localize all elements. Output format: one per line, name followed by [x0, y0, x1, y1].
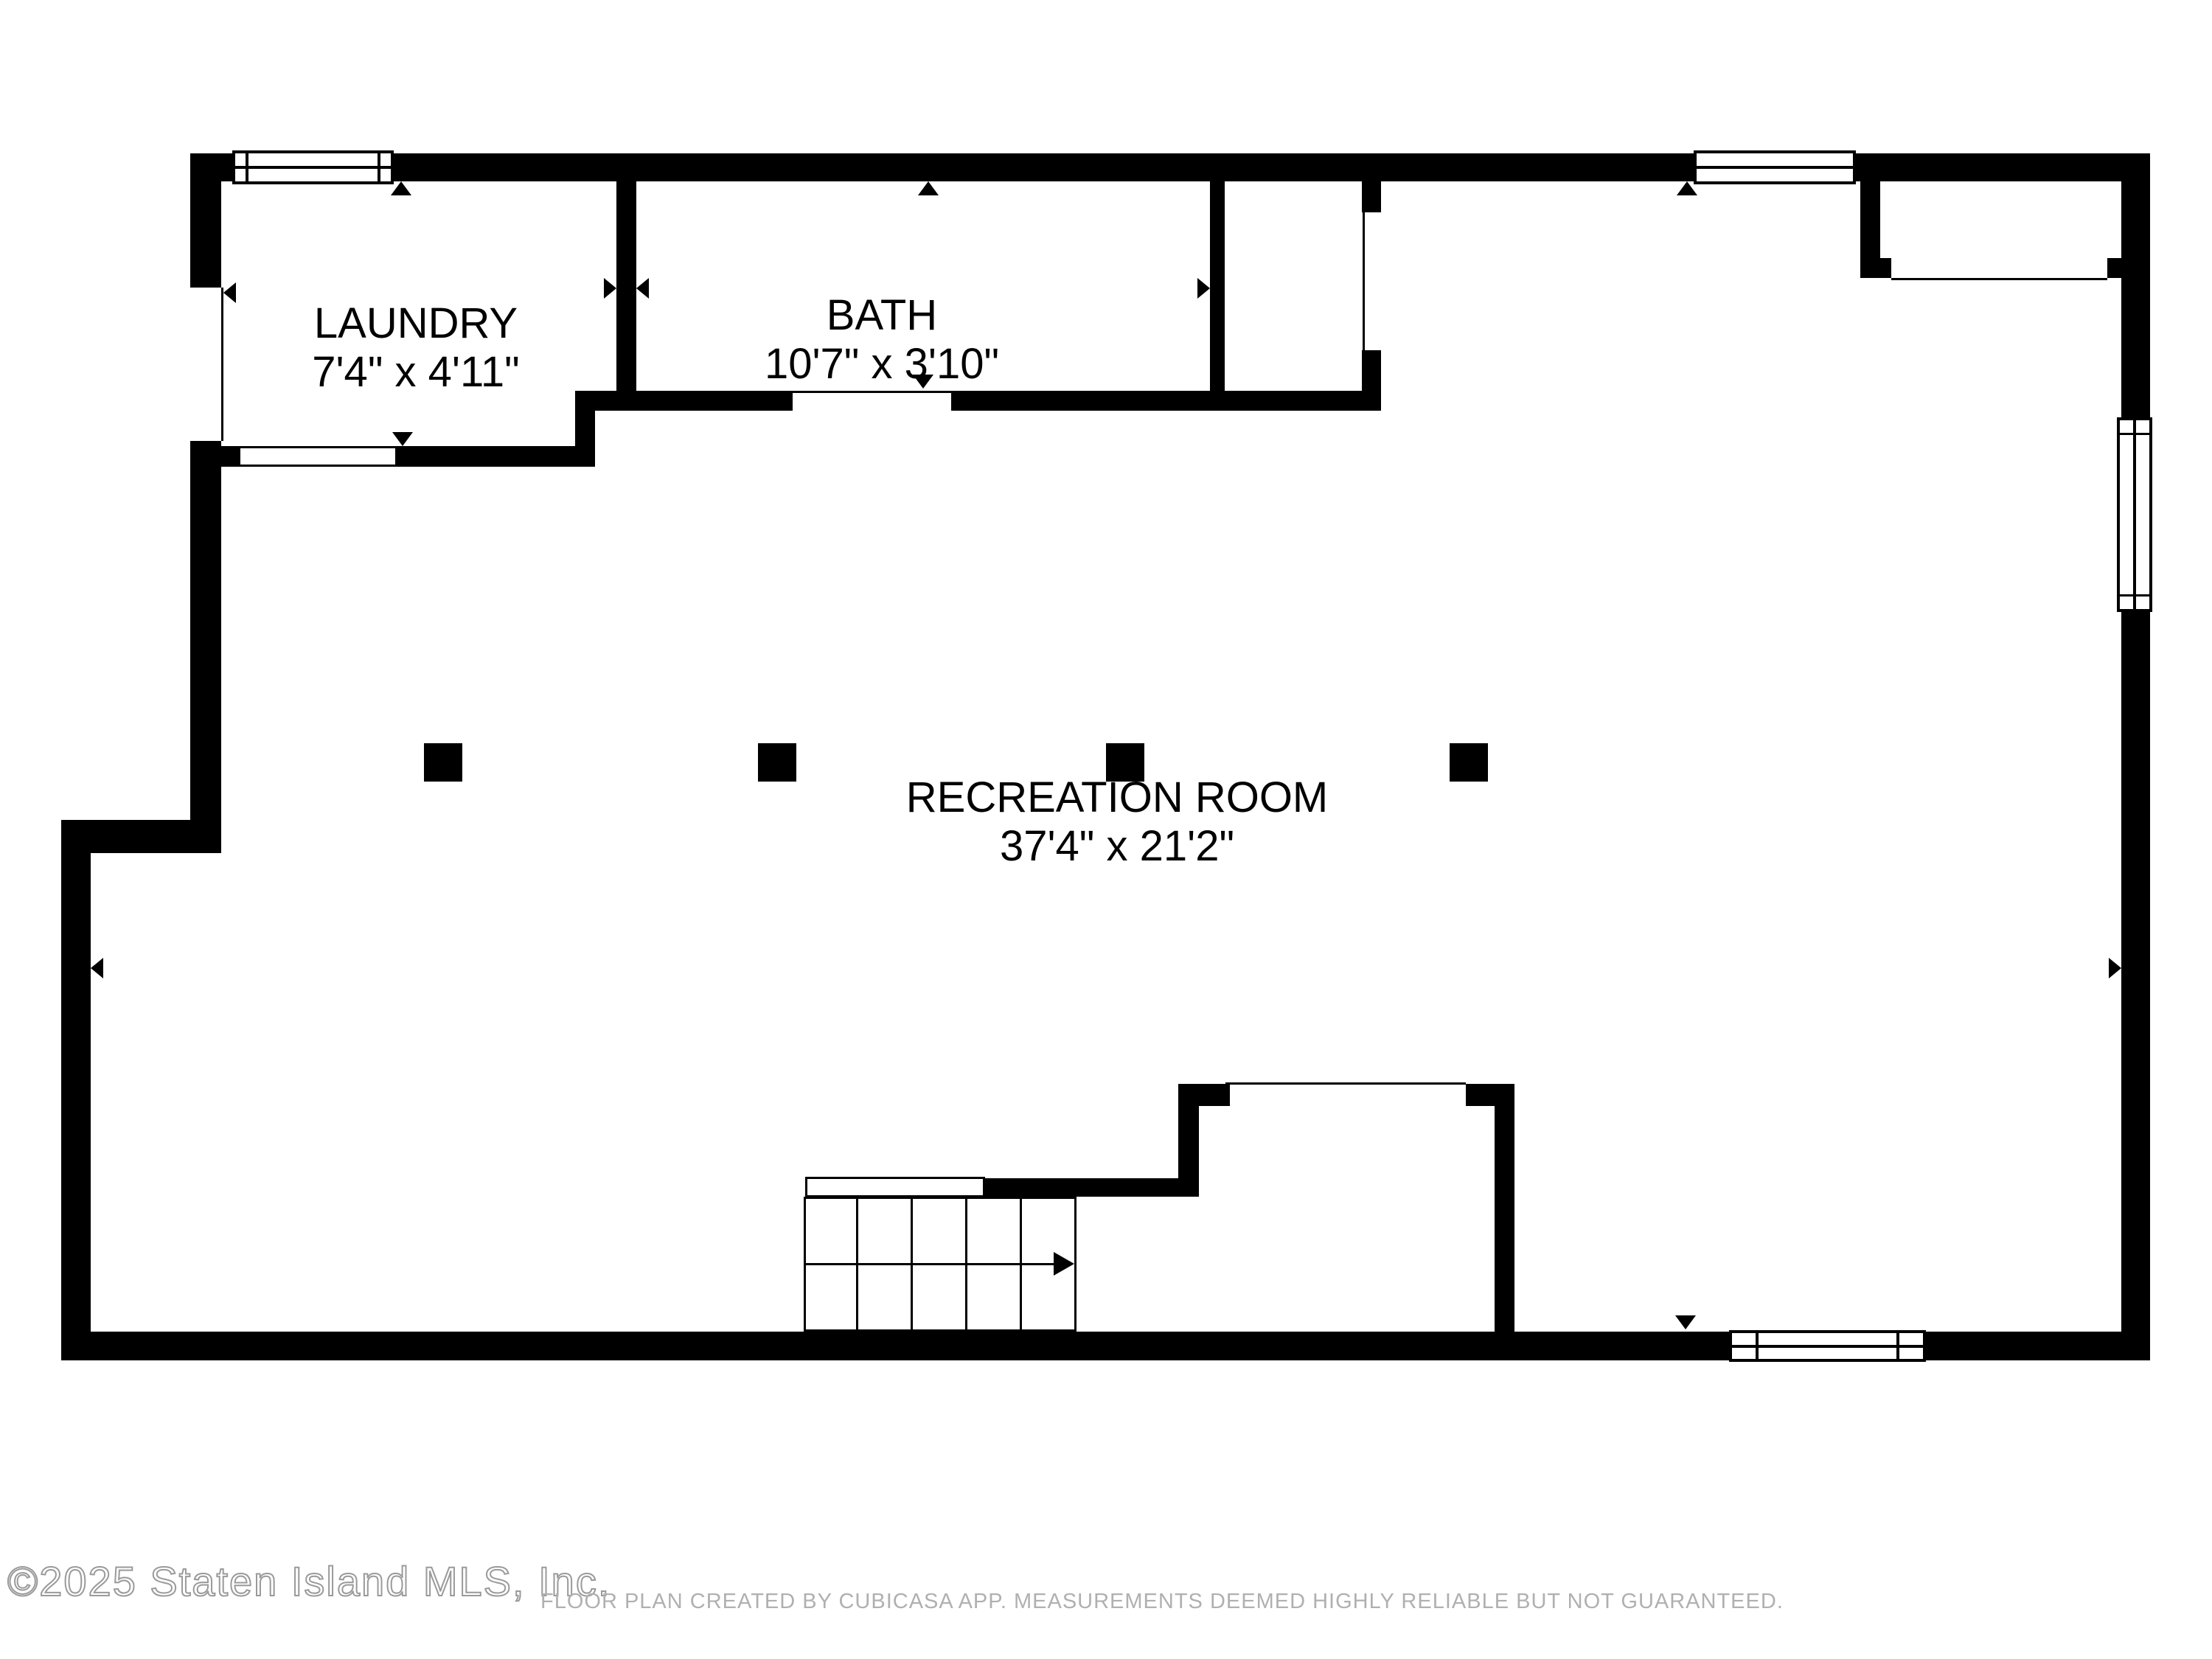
room-label-laundry: LAUNDRY 7'4" x 4'11"	[312, 299, 520, 397]
wall-laundry-bath-connector	[575, 391, 595, 467]
opening-line-laundry-top-edge	[240, 446, 395, 448]
window-endcap	[1896, 1333, 1899, 1359]
door-arrow-recroom-left-icon	[91, 958, 103, 978]
window-laundry-top	[232, 150, 394, 184]
door-arrow-divider-left-icon	[604, 278, 616, 299]
room-name: LAUNDRY	[312, 299, 520, 348]
wall-stair-vertical	[1178, 1084, 1199, 1197]
door-arrow-bath-top-icon	[918, 181, 939, 195]
door-arrow-topright-window-icon	[1677, 181, 1697, 195]
wall-bottom-right-segment	[1926, 1332, 2150, 1360]
room-name: BATH	[765, 291, 999, 340]
door-arrow-bottom-wall-icon	[1675, 1315, 1696, 1329]
opening-line-laundry-bottom-edge	[240, 465, 395, 467]
staircase	[804, 1197, 1077, 1332]
door-arrow-recroom-right-icon	[2109, 958, 2121, 978]
window-endcap	[1756, 1333, 1759, 1359]
opening-line-closet-door	[1363, 212, 1365, 350]
door-arrow-bath-right-icon	[1197, 278, 1210, 299]
room-dimensions: 7'4" x 4'11"	[312, 348, 520, 397]
door-arrow-divider-right-icon	[636, 278, 649, 299]
door-arrow-left-wall-icon	[223, 282, 236, 303]
wall-right-upper	[2121, 153, 2150, 419]
wall-laundry-bath-divider	[616, 181, 636, 411]
window-midline	[2133, 420, 2136, 609]
wall-topright-room-stub	[2107, 258, 2121, 278]
wall-topright-room-foot	[1860, 258, 1891, 278]
wall-top-main-segment	[392, 153, 1696, 181]
mls-watermark: ©2025 Staten Island MLS, Inc.	[7, 1557, 611, 1605]
window-endcap	[378, 153, 380, 181]
support-column	[758, 743, 796, 782]
wall-bath-bottom-left	[595, 391, 793, 411]
room-name: RECREATION ROOM	[906, 773, 1329, 822]
door-arrow-laundry-opening-icon	[392, 432, 413, 446]
wall-left-step	[61, 820, 221, 853]
wall-understair-right	[1495, 1084, 1514, 1332]
wall-right-lower	[2121, 611, 2150, 1360]
window-midline	[235, 166, 391, 169]
room-label-recreation: RECREATION ROOM 37'4" x 21'2"	[906, 773, 1329, 871]
wall-left-middle	[190, 441, 221, 820]
room-dimensions: 10'7" x 3'10"	[765, 340, 999, 389]
wall-top-right-segment	[1854, 153, 2150, 181]
support-column	[1450, 743, 1488, 782]
wall-bath-bottom-right	[951, 391, 1381, 411]
support-column	[424, 743, 462, 782]
opening-line-topright-room	[1891, 278, 2107, 280]
opening-line-bath-doorway	[793, 391, 951, 393]
wall-laundry-bottom-stub	[190, 446, 240, 467]
window-endcap	[246, 153, 248, 181]
stair-upper-landing	[805, 1177, 985, 1197]
window-bottom-wall	[1729, 1330, 1926, 1362]
floor-plan: LAUNDRY 7'4" x 4'11" BATH 10'7" x 3'10" …	[0, 0, 2212, 1659]
wall-closet-right-top	[1362, 181, 1381, 212]
stair-direction-arrow-icon	[1054, 1252, 1074, 1276]
wall-bottom-left-segment	[61, 1332, 1731, 1360]
wall-left-lower	[61, 853, 91, 1332]
window-midline	[1697, 166, 1853, 169]
wall-laundry-bottom	[395, 446, 595, 467]
room-dimensions: 37'4" x 21'2"	[906, 822, 1329, 871]
cubicasa-disclaimer: FLOOR PLAN CREATED BY CUBICASA APP. MEAS…	[540, 1590, 1784, 1614]
wall-stair-stub	[1199, 1084, 1230, 1106]
wall-stair-horizontal	[985, 1178, 1199, 1197]
room-label-bath: BATH 10'7" x 3'10"	[765, 291, 999, 389]
window-rail	[2120, 433, 2149, 435]
window-top-right	[1694, 150, 1856, 184]
stair-walk-line	[806, 1263, 1058, 1265]
window-right-wall	[2117, 417, 2152, 612]
window-midline	[1732, 1345, 1923, 1348]
wall-closet-right-bottom	[1362, 350, 1381, 391]
window-rail	[2120, 594, 2149, 597]
opening-line-left-wall-door	[221, 288, 223, 441]
opening-line-understair-room	[1225, 1082, 1466, 1085]
door-arrow-laundry-window-icon	[391, 181, 411, 195]
wall-left-upper	[190, 153, 221, 288]
wall-bath-right	[1210, 181, 1225, 391]
